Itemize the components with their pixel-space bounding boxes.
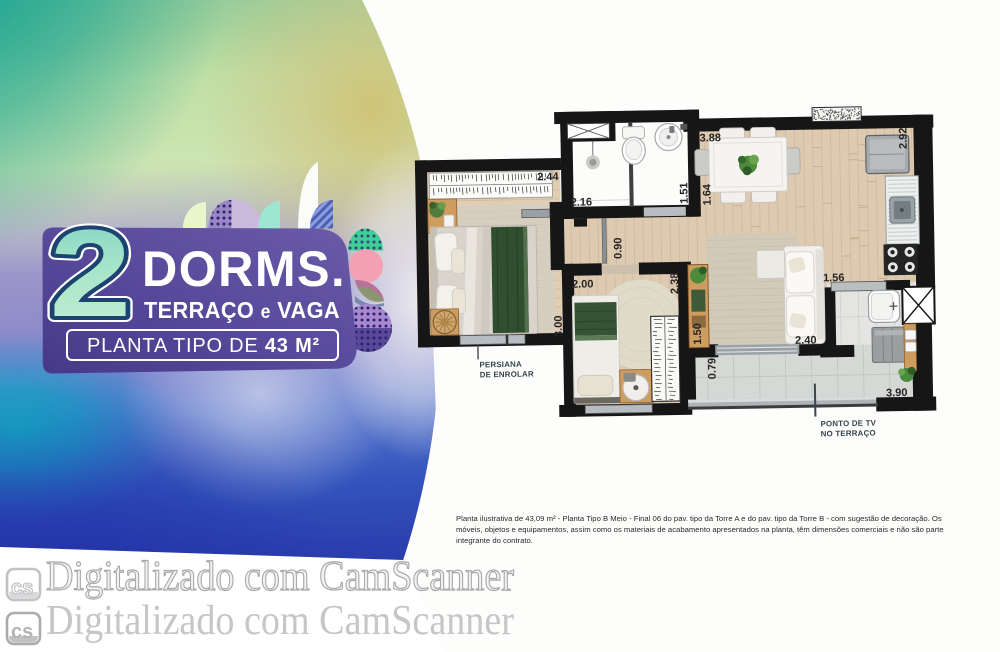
svg-text:2.92: 2.92 xyxy=(897,127,909,149)
svg-text:TERRAÇO e VAGA: TERRAÇO e VAGA xyxy=(144,297,340,323)
svg-text:DORMS.: DORMS. xyxy=(142,240,346,297)
svg-text:3.00: 3.00 xyxy=(553,316,565,338)
svg-text:2: 2 xyxy=(49,204,131,342)
svg-text:Digitalizado com CamScanner: Digitalizado com CamScanner xyxy=(46,598,514,644)
svg-text:PONTO DE TV: PONTO DE TV xyxy=(820,418,876,428)
svg-text:Planta ilustrativa de 43,09 m²: Planta ilustrativa de 43,09 m² - Planta … xyxy=(456,514,942,523)
svg-text:2.38: 2.38 xyxy=(669,272,681,294)
svg-text:3.90: 3.90 xyxy=(886,387,908,399)
svg-text:1.50: 1.50 xyxy=(692,323,704,345)
svg-text:3.88: 3.88 xyxy=(699,132,721,144)
svg-text:móveis, objetos e equipamentos: móveis, objetos e equipamentos, assim co… xyxy=(456,525,944,534)
svg-text:cs: cs xyxy=(11,621,33,643)
svg-text:0.90: 0.90 xyxy=(612,237,624,259)
svg-text:DE ENROLAR: DE ENROLAR xyxy=(480,369,534,379)
svg-text:cs: cs xyxy=(11,577,33,599)
svg-text:PERSIANA: PERSIANA xyxy=(479,360,522,370)
svg-text:integrante do contrato.: integrante do contrato. xyxy=(456,536,533,545)
svg-text:2.44: 2.44 xyxy=(537,171,559,183)
svg-text:1.51: 1.51 xyxy=(678,182,690,204)
svg-text:Digitalizado com CamScanner: Digitalizado com CamScanner xyxy=(46,554,514,600)
svg-text:1.56: 1.56 xyxy=(823,272,845,284)
svg-text:NO TERRAÇO: NO TERRAÇO xyxy=(821,429,876,439)
svg-text:2.16: 2.16 xyxy=(571,196,593,208)
svg-text:2.40: 2.40 xyxy=(795,335,817,347)
svg-text:2.00: 2.00 xyxy=(572,278,594,290)
svg-text:0.79: 0.79 xyxy=(706,358,718,380)
svg-text:1.64: 1.64 xyxy=(701,183,713,205)
